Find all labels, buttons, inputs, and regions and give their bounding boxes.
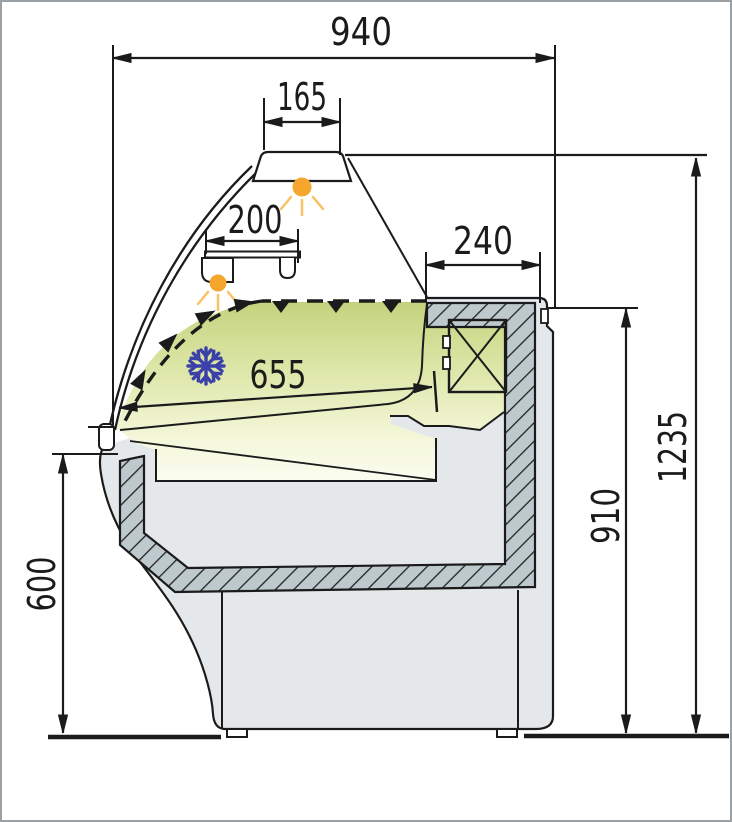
evaporator-clip-bottom bbox=[443, 357, 450, 369]
canopy-lamp-housing bbox=[253, 152, 351, 181]
dimension-label: 165 bbox=[277, 75, 327, 119]
dimension-label: 600 bbox=[20, 557, 64, 612]
lamp-bulb bbox=[293, 178, 312, 197]
dimension-label: 1235 bbox=[651, 411, 695, 483]
evaporator-clip-top bbox=[443, 336, 450, 348]
cross-section-drawing: 940 165 200 240 bbox=[0, 0, 732, 822]
foot-rear bbox=[497, 729, 517, 737]
lamp-bulb bbox=[210, 275, 227, 292]
shelf-board bbox=[205, 252, 300, 258]
snowflake-icon bbox=[188, 348, 224, 384]
dimension-label: 240 bbox=[453, 219, 513, 263]
shelf-support bbox=[280, 258, 295, 278]
dimension-label: 910 bbox=[584, 488, 628, 544]
drawing-page: 940 165 200 240 bbox=[0, 0, 732, 822]
dimension-label: 940 bbox=[330, 10, 392, 54]
dimension-label: 200 bbox=[228, 198, 283, 242]
foot-front bbox=[227, 729, 247, 737]
dimension-label: 655 bbox=[250, 353, 307, 397]
corner-notch bbox=[541, 309, 548, 323]
